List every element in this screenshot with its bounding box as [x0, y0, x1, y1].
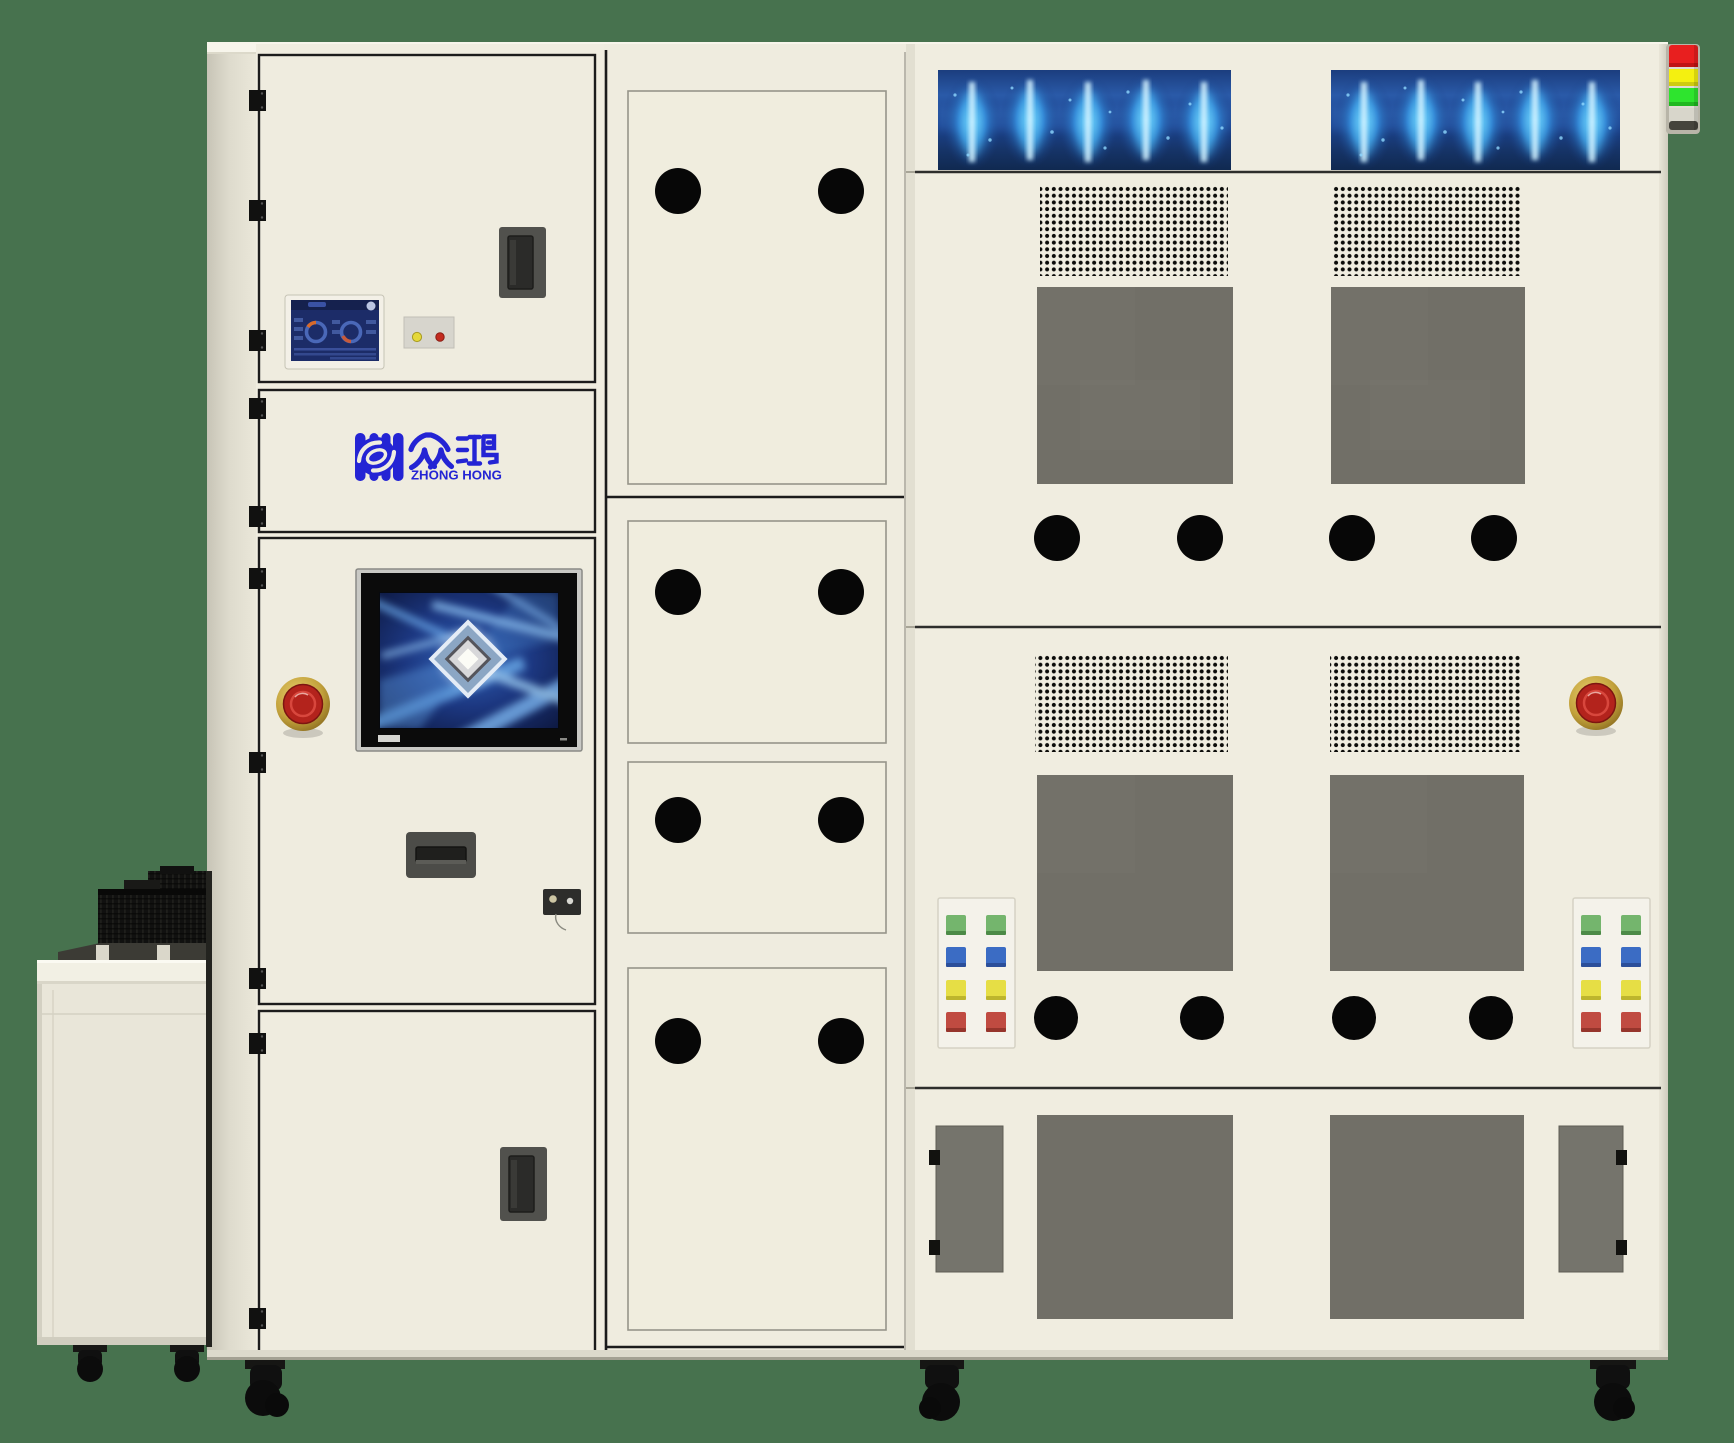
svg-text:ZHONG HONG: ZHONG HONG — [411, 468, 502, 483]
